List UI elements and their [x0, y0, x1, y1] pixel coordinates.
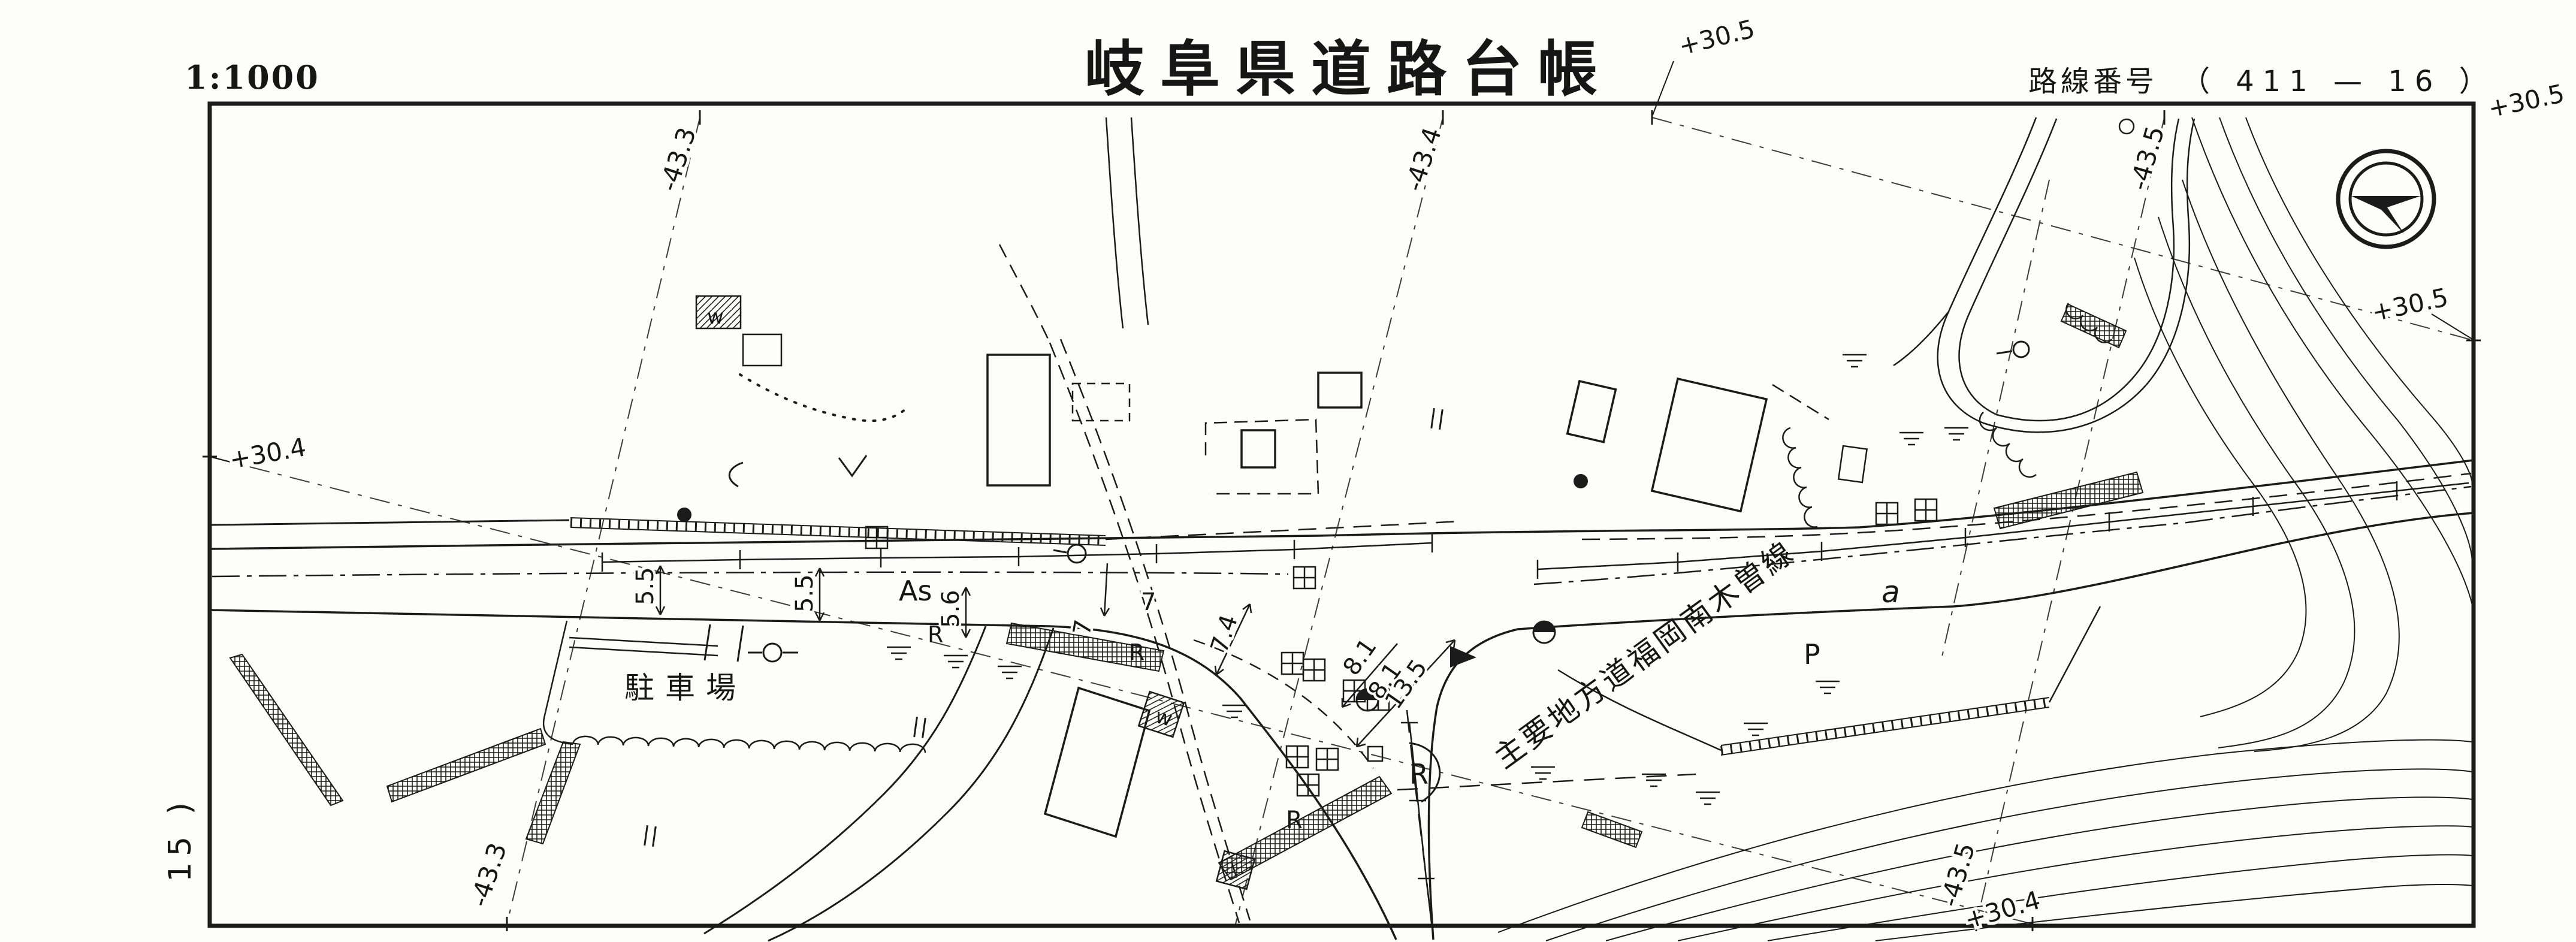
vegetation-symbol — [1222, 705, 1246, 717]
vegetation-symbol — [1899, 433, 1923, 445]
r-mark: R — [1129, 639, 1144, 666]
vegetation-symbol — [998, 666, 1022, 678]
buildings — [696, 296, 1867, 889]
grid-label: -43.5 — [2124, 123, 2170, 194]
contour-lines — [1498, 117, 2472, 941]
road-ledger-drawing: As 駐車場 主要地方道福岡南木曽線 P a w w 5.5 5.5 5.6 7… — [0, 0, 2576, 942]
survey-point — [677, 508, 691, 522]
field-square — [1282, 653, 1303, 674]
vegetation-symbol — [1816, 681, 1840, 693]
parcel-square — [1368, 747, 1382, 761]
grid-label: -43.3 — [464, 840, 512, 910]
grid-label: +30.4 — [227, 432, 308, 475]
vegetation-symbol — [944, 656, 968, 668]
vegetation-symbol — [1696, 792, 1720, 804]
width-label: 5.5 — [632, 567, 659, 605]
sheet-title: 岐阜県道路台帳 — [1085, 34, 1613, 104]
field-square — [1915, 499, 1937, 521]
building — [1568, 381, 1616, 442]
building — [1652, 379, 1766, 511]
field-square — [1287, 746, 1308, 768]
building — [1318, 373, 1361, 407]
survey-point — [1574, 474, 1588, 488]
utility-icon — [1533, 621, 1555, 643]
retaining-walls — [230, 304, 2143, 880]
field-square — [1303, 659, 1325, 681]
parking-label: 駐車場 — [624, 671, 747, 705]
r-mark: R — [1409, 758, 1429, 790]
field-square — [1876, 503, 1898, 524]
field-square — [1294, 567, 1315, 588]
north-arrow-icon — [2338, 151, 2434, 247]
area-a-label: a — [1882, 575, 1900, 609]
parking-p-label: P — [1804, 638, 1820, 671]
grid-labels: -43.3 -43.4 -43.5 +30.5 +30.5 +30.5 +30.… — [227, 14, 2567, 935]
page-number: 15 ) — [162, 796, 198, 882]
vegetation-symbol — [1843, 355, 1867, 367]
width-label: 5.5 — [791, 574, 819, 612]
building — [1838, 446, 1867, 482]
grid-label: +30.5 — [2486, 78, 2567, 123]
route-number: （ 411 — 16 ） — [2181, 65, 2496, 98]
hook-symbol — [729, 463, 743, 487]
scale-label: 1:1000 — [185, 58, 320, 96]
double-bar-symbol — [914, 717, 926, 738]
vegetation-symbol — [1531, 767, 1555, 779]
dimension-arrows — [656, 563, 1455, 747]
map-symbols — [645, 342, 2029, 847]
building — [743, 334, 781, 366]
building — [987, 355, 1050, 485]
building — [1242, 430, 1275, 467]
parcel-boundaries — [740, 117, 1829, 923]
field-square — [1316, 748, 1338, 770]
grid-label: +30.5 — [1676, 14, 1758, 61]
map-sheet: As 駐車場 主要地方道福岡南木曽線 P a w w 5.5 5.5 5.6 7… — [0, 0, 2576, 942]
building — [1045, 688, 1149, 837]
grid-label: -43.3 — [654, 124, 702, 195]
pole-icon — [1053, 545, 1086, 563]
vegetation-symbol — [887, 647, 911, 659]
pole-icon — [748, 644, 798, 662]
grid-label: +30.5 — [2369, 282, 2451, 327]
w-mark: w — [707, 305, 724, 329]
surface-label: As — [899, 575, 932, 607]
pond-symbol — [2119, 119, 2134, 134]
v-symbol — [839, 455, 866, 476]
parking-lot-scallop-boundary — [573, 736, 925, 753]
double-bar-symbol — [1432, 408, 1443, 430]
route-caption: 路線番号 — [2028, 65, 2158, 98]
r-mark: R — [1286, 807, 1303, 834]
vegetation-symbol — [1944, 428, 1968, 440]
r-mark: R — [928, 621, 943, 648]
width-label: 7 — [1141, 588, 1156, 616]
vegetation-symbol — [1744, 723, 1768, 735]
double-bar-symbol — [645, 825, 656, 847]
width-label: 7.4 — [1206, 611, 1243, 656]
road-name-label: 主要地方道福岡南木曽線 — [1488, 534, 1802, 775]
grid-label: -43.4 — [1399, 124, 1447, 195]
grid-label: -43.5 — [1935, 840, 1981, 910]
